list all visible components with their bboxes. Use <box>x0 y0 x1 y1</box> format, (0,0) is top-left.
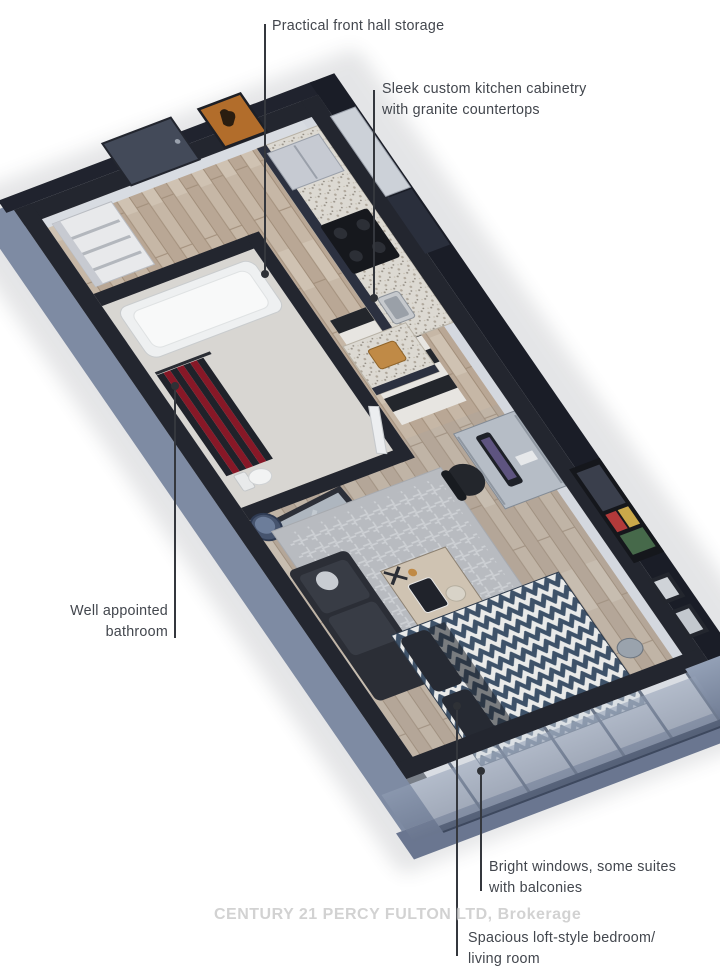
annotation-kitchen: Sleek custom kitchen cabinetry with gran… <box>382 79 587 121</box>
floorplan-page: Practical front hall storage Sleek custo… <box>0 0 720 969</box>
annotation-text: Bright windows, some suites <box>489 857 676 878</box>
leader-dot <box>171 382 179 390</box>
leader-line <box>174 390 176 638</box>
annotation-text: Spacious loft-style bedroom/ <box>468 928 655 949</box>
annotation-windows: Bright windows, some suites with balconi… <box>489 857 676 899</box>
annotation-text: with balconies <box>489 878 676 899</box>
leader-dot <box>477 767 485 775</box>
annotation-text: Sleek custom kitchen cabinetry <box>382 79 587 100</box>
annotation-loft: Spacious loft-style bedroom/ living room <box>468 928 655 969</box>
annotation-text: living room <box>468 949 655 969</box>
annotation-text: Practical front hall storage <box>272 16 444 37</box>
annotation-text: Well appointed <box>20 601 168 622</box>
watermark: CENTURY 21 PERCY FULTON LTD, Brokerage <box>214 906 581 924</box>
leader-dot <box>453 702 461 710</box>
leader-line <box>264 24 266 274</box>
leader-dot <box>261 270 269 278</box>
annotation-text: bathroom <box>20 622 168 643</box>
leader-line <box>480 775 482 891</box>
leader-line <box>373 90 375 296</box>
floorplan-rendering <box>0 0 720 969</box>
annotation-text: with granite countertops <box>382 100 587 121</box>
leader-dot <box>370 294 378 302</box>
annotation-bathroom: Well appointed bathroom <box>20 601 168 643</box>
annotation-front-hall-storage: Practical front hall storage <box>272 16 444 37</box>
